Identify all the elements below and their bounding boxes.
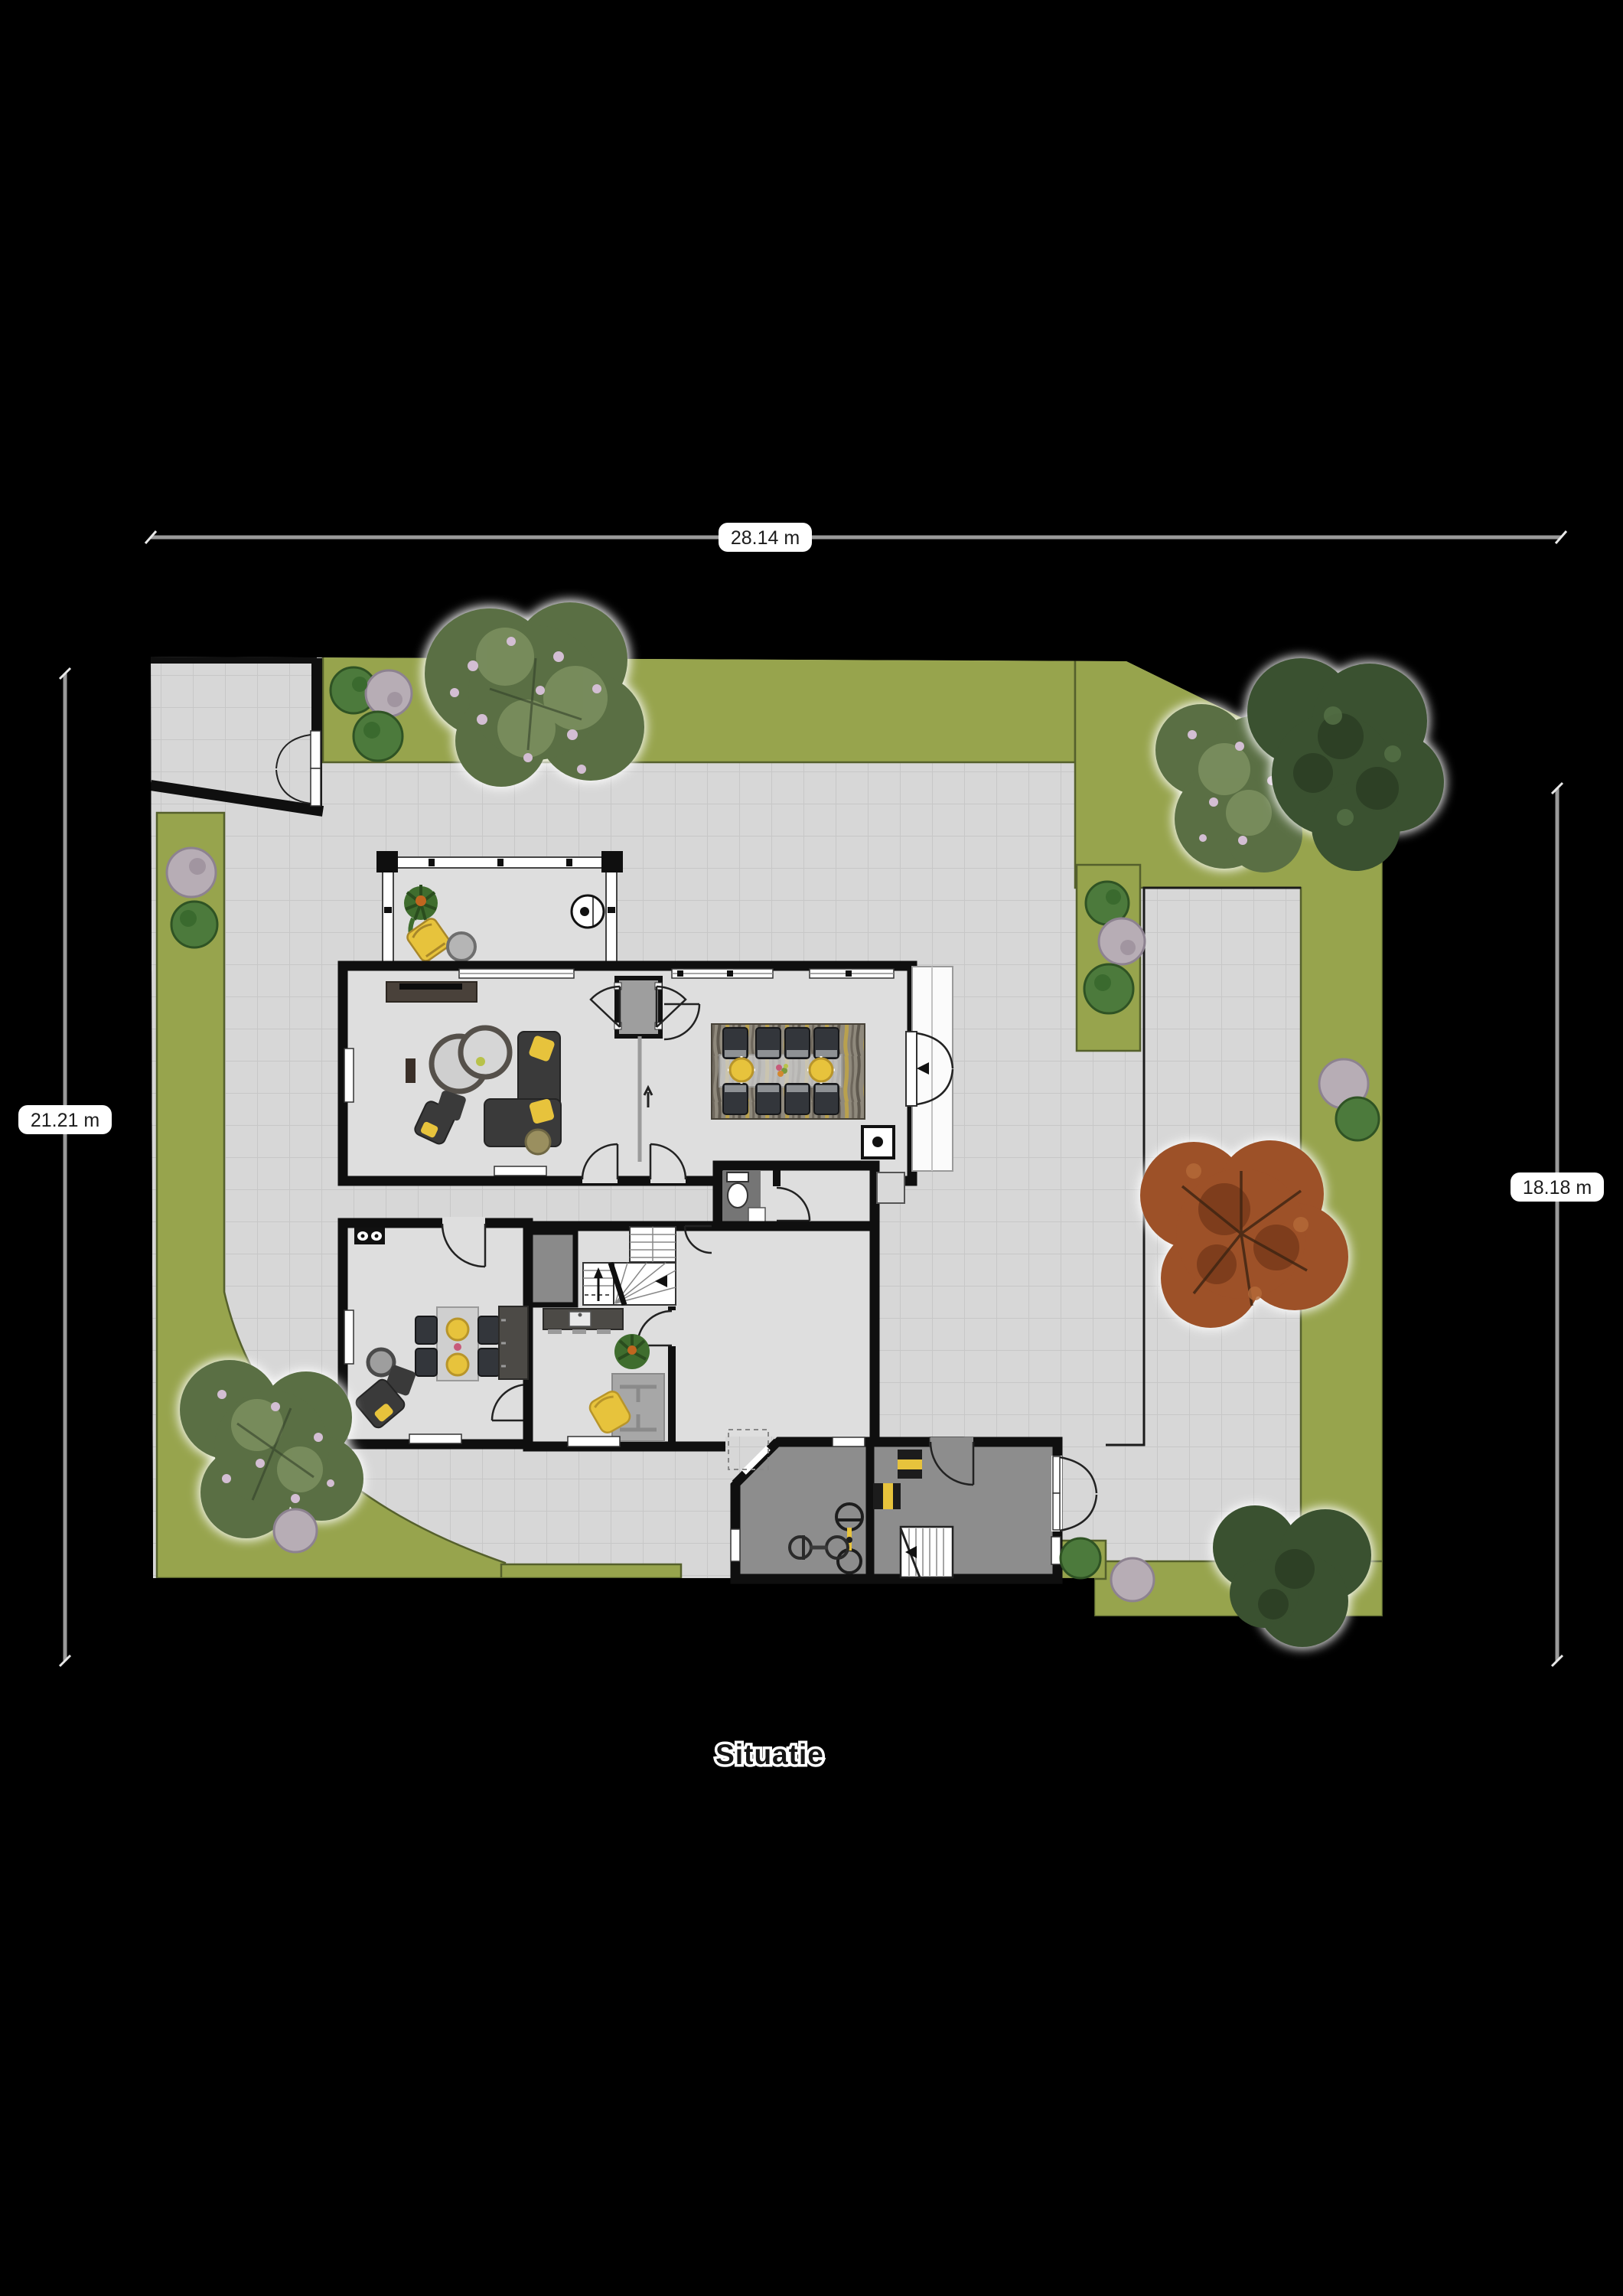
yellow-plate	[447, 1319, 468, 1340]
window	[568, 1437, 620, 1446]
french-door-frame	[906, 1032, 917, 1106]
yellow-plate	[730, 1058, 753, 1081]
side-table	[526, 1130, 550, 1154]
window	[1051, 1537, 1061, 1564]
gate-leaf	[311, 731, 321, 768]
bush-gray-bottomleft	[274, 1509, 317, 1552]
fire-bowl	[572, 895, 604, 928]
gate-leaf	[311, 768, 321, 806]
chair	[478, 1349, 500, 1376]
flower	[454, 1343, 461, 1351]
toilet-sink	[748, 1208, 765, 1223]
staircase-down	[901, 1527, 953, 1577]
corner-post	[376, 851, 398, 872]
garage	[725, 1430, 1097, 1579]
window	[409, 1434, 461, 1443]
door-gap	[582, 1171, 618, 1183]
chair	[478, 1316, 500, 1344]
vestibule-box	[617, 978, 660, 1036]
wall-art	[406, 1058, 416, 1083]
kitchen-block	[499, 1226, 875, 1446]
floor-mat	[898, 1450, 922, 1479]
door-gap	[650, 1171, 686, 1183]
door-gap	[773, 1186, 781, 1221]
floor-mat	[873, 1483, 901, 1509]
window	[344, 1310, 354, 1364]
window	[731, 1529, 740, 1561]
small-dining-set	[416, 1307, 500, 1381]
window	[833, 1437, 865, 1446]
small-plant	[476, 1057, 485, 1066]
round-pouf	[368, 1349, 394, 1375]
toilet-icon	[727, 1172, 748, 1208]
yellow-plate	[810, 1058, 833, 1081]
storage-unit	[877, 1172, 904, 1203]
plant-study	[614, 1334, 650, 1369]
chair	[416, 1316, 437, 1344]
dimension-label-left: 21.21 m	[31, 1110, 99, 1131]
corner-post	[601, 851, 623, 872]
utility-shaft	[530, 1232, 575, 1305]
situatie-site-plan: 28.14 m 21.21 m 18.18 m	[0, 0, 1623, 2296]
grass-bottom-strip	[501, 1564, 681, 1578]
door-gap	[930, 1437, 973, 1447]
cooktop-icon	[354, 1228, 385, 1244]
side-table-garden-room	[448, 933, 475, 960]
tree-autumn-right	[1139, 1139, 1350, 1329]
yellow-plate	[447, 1354, 468, 1375]
round-mirror	[461, 1028, 510, 1077]
dimension-label-top: 28.14 m	[731, 527, 800, 549]
east-terrace	[906, 967, 953, 1171]
door-gap	[442, 1217, 485, 1229]
dimension-label-right: 18.18 m	[1523, 1177, 1592, 1199]
dining-chairs-bottom	[723, 1084, 839, 1114]
dining-chairs-top	[723, 1028, 839, 1058]
chair	[416, 1349, 437, 1376]
door-gap	[668, 1310, 676, 1346]
tree-blossom-bottomleft	[178, 1358, 365, 1540]
floor-lamp-square	[862, 1127, 894, 1158]
tv	[399, 983, 462, 990]
plan-title: Situatie	[715, 1739, 824, 1770]
